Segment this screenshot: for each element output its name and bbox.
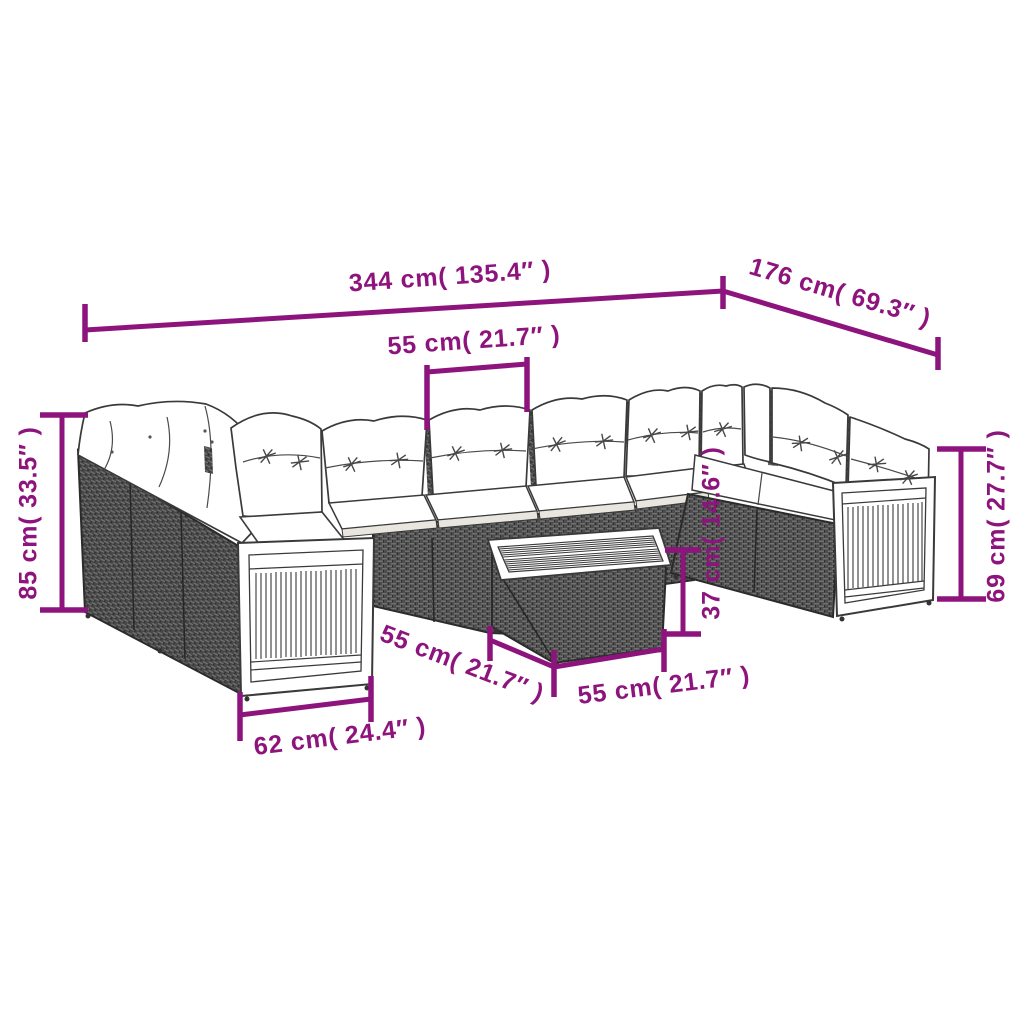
dimension-diagram: 344 cm( 135.4″ ) 176 cm( 69.3″ ) 55 cm( …	[0, 0, 1024, 1024]
dim-line-seat-width	[427, 364, 527, 372]
left-wood-panel	[238, 538, 374, 696]
rattan-post	[204, 446, 213, 474]
right-wood-panel	[833, 477, 935, 616]
dimension-label-overall-height: 85 cm( 33.5″ )	[15, 426, 44, 599]
back-cushion	[744, 384, 770, 462]
sofa-set-illustration	[0, 0, 1024, 1024]
dim-line-end-module	[240, 699, 371, 715]
dimension-label-table-height: 37 cm( 14.6″ )	[698, 446, 727, 619]
coffee-table	[488, 528, 671, 663]
panel-slats	[256, 569, 356, 659]
dimension-label-back-height: 69 cm( 27.7″ )	[983, 429, 1012, 602]
corner-back-cushion	[231, 413, 322, 517]
dim-line-overall-width	[85, 291, 723, 330]
back-cushion	[772, 388, 848, 487]
